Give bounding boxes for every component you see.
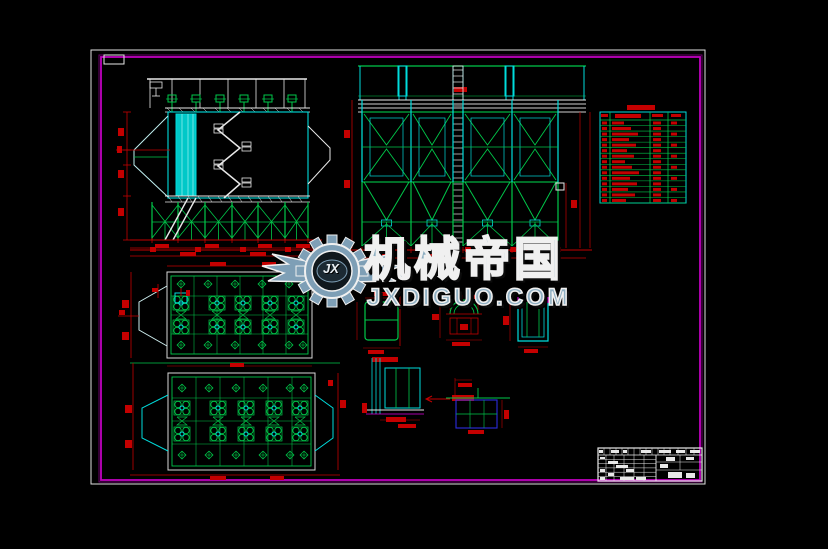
detail-views: [357, 292, 548, 434]
title-block: [598, 448, 702, 481]
dimension-lines: [130, 238, 592, 258]
cad-drawing: [0, 0, 828, 549]
front-elevation-view: [344, 66, 590, 248]
plan-view-lower: [125, 363, 346, 480]
plan-view-upper: [118, 262, 312, 358]
cad-viewport[interactable]: JX 机械帝国 JXDIGUO.COM: [0, 0, 828, 549]
side-elevation-view: [116, 79, 330, 240]
parts-list-table: [600, 105, 686, 203]
